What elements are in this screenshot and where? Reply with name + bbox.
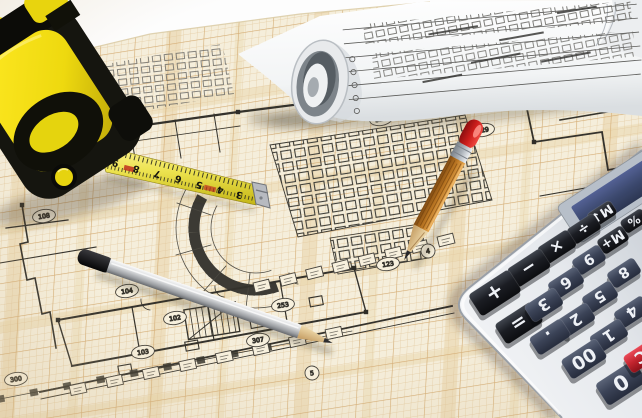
blueprint-photo: Architectural blueprint photo: tape meas… — [0, 0, 642, 418]
